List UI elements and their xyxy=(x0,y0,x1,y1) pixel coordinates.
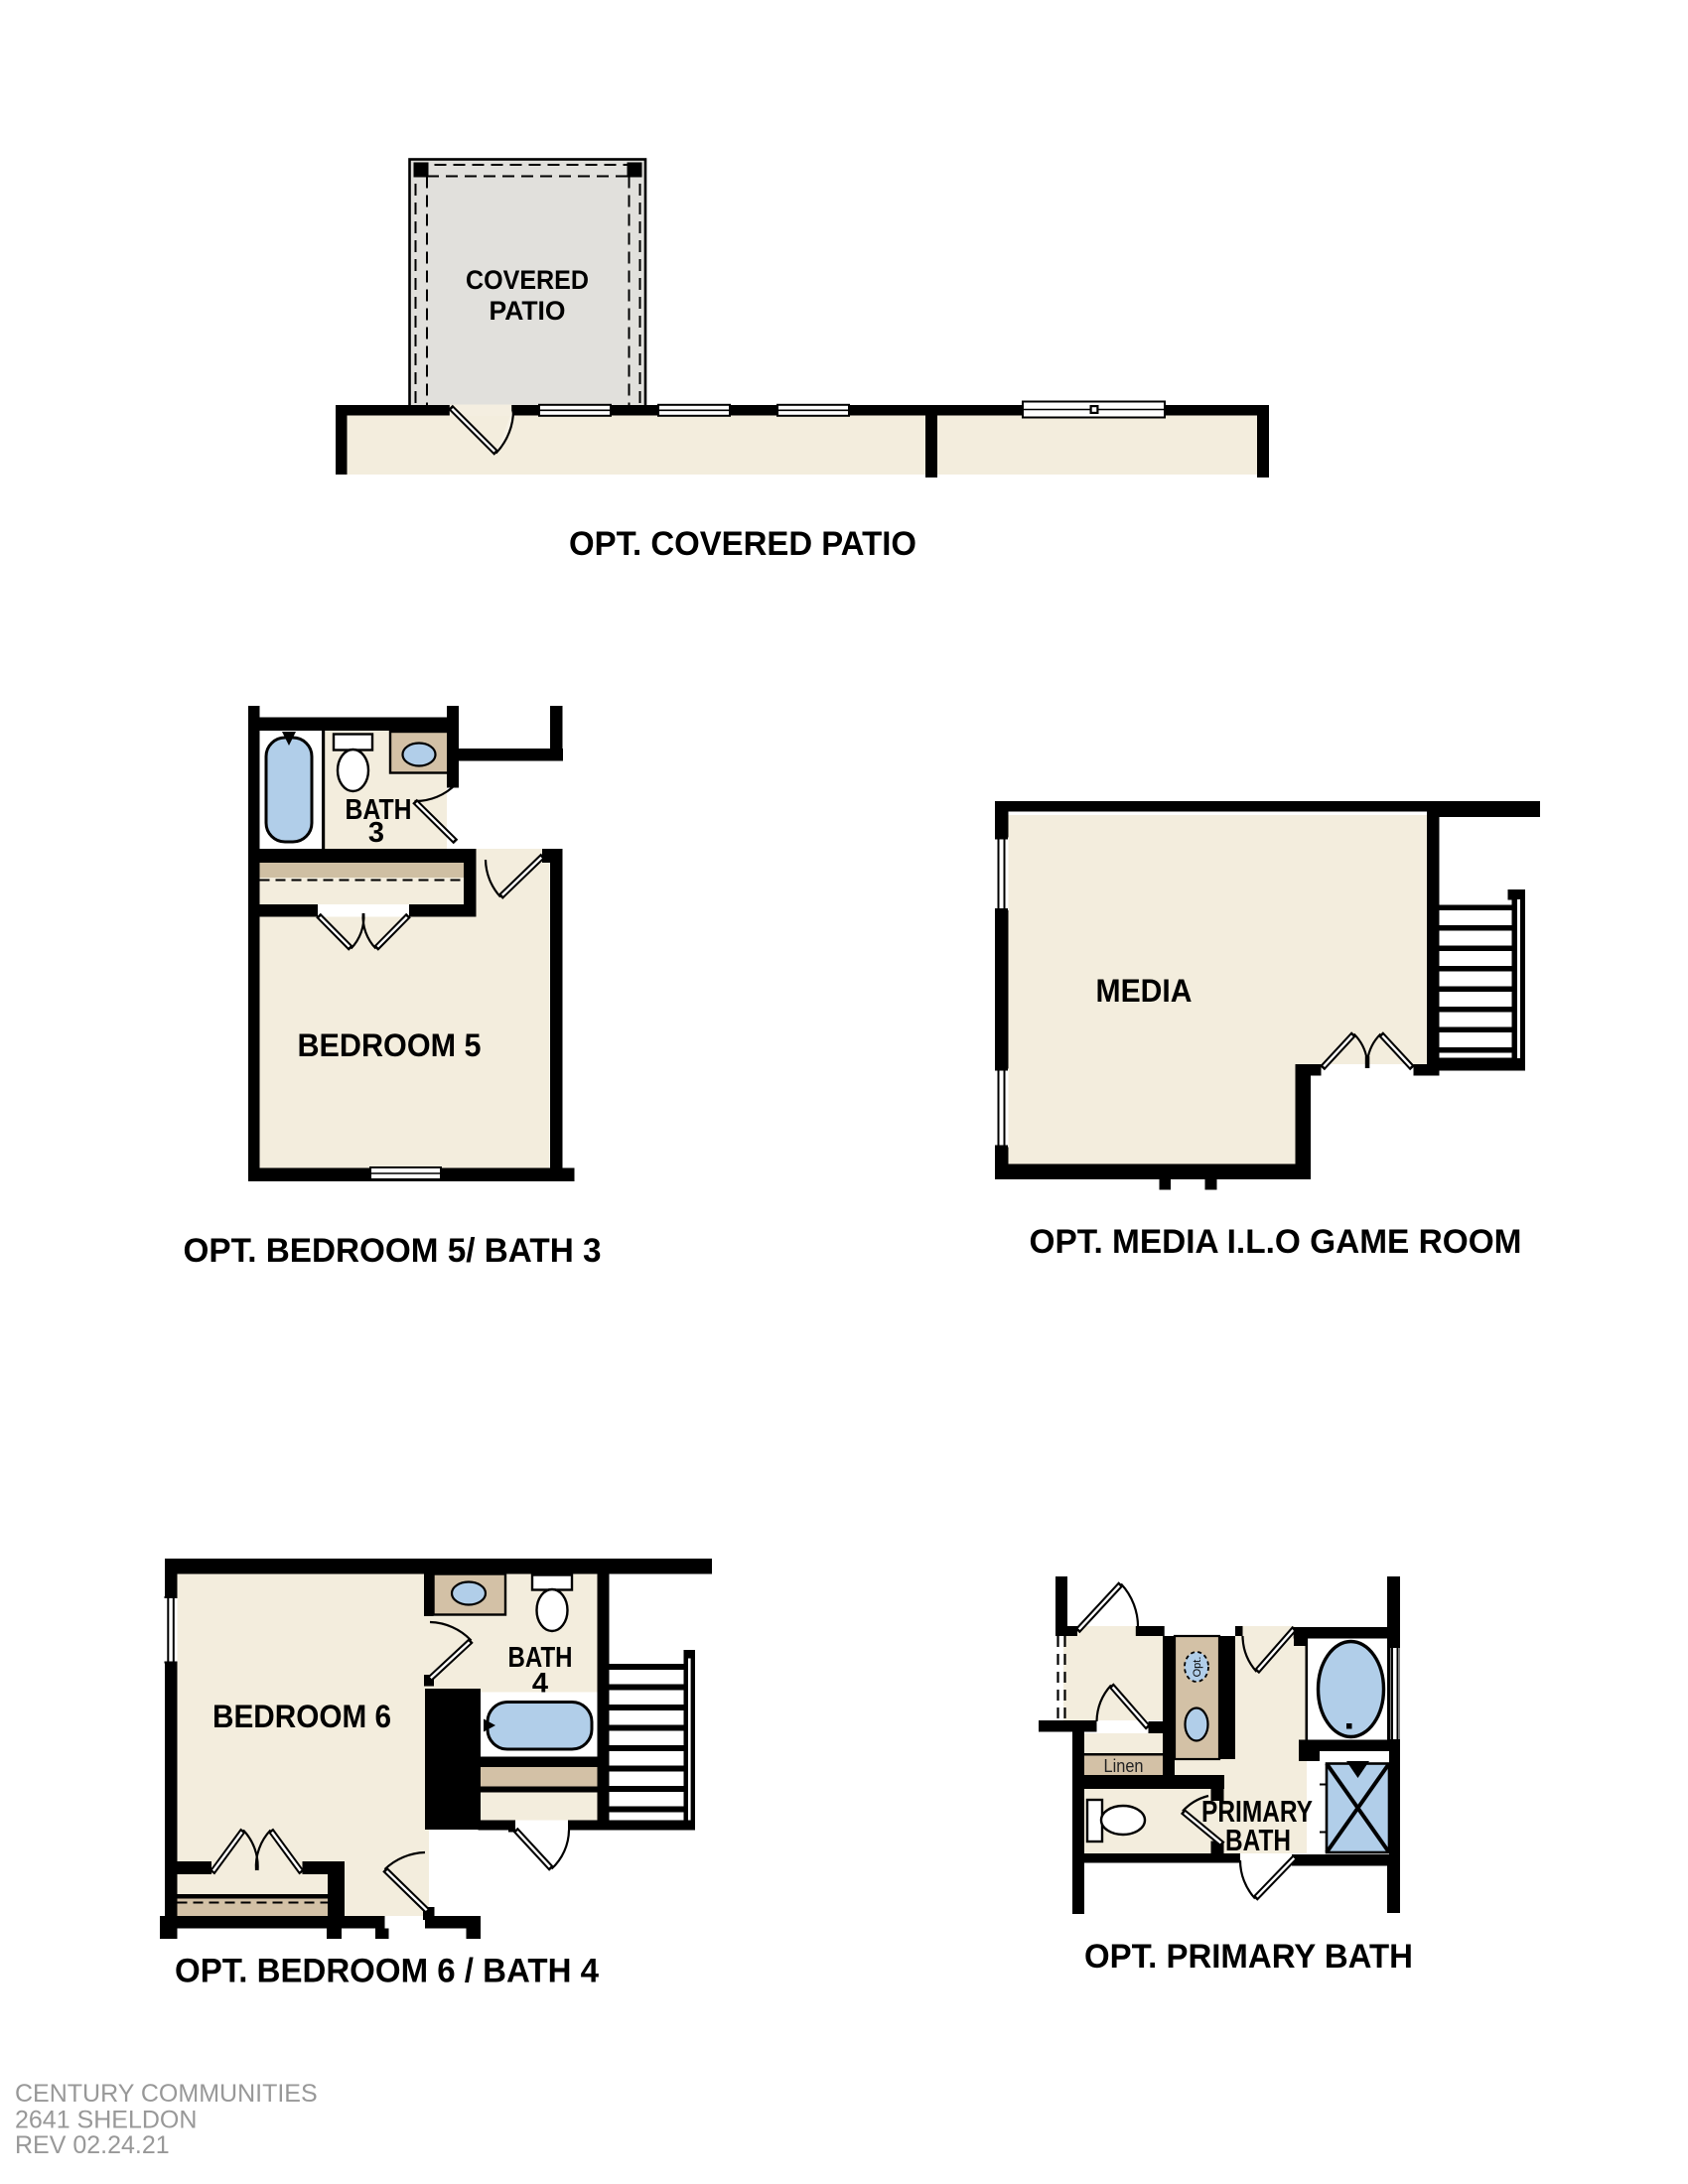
svg-text:BEDROOM 6: BEDROOM 6 xyxy=(212,1699,391,1734)
svg-text:OPT. COVERED PATIO: OPT. COVERED PATIO xyxy=(569,525,916,563)
svg-text:OPT. PRIMARY BATH: OPT. PRIMARY BATH xyxy=(1084,1938,1413,1976)
svg-text:3: 3 xyxy=(368,817,384,849)
svg-text:OPT. BEDROOM 6 / BATH 4: OPT. BEDROOM 6 / BATH 4 xyxy=(175,1953,599,1990)
svg-text:2641 SHELDON: 2641 SHELDON xyxy=(15,2107,197,2134)
svg-text:OPT. BEDROOM 5/ BATH 3: OPT. BEDROOM 5/ BATH 3 xyxy=(184,1232,602,1270)
svg-text:OPT. MEDIA I.L.O GAME ROOM: OPT. MEDIA I.L.O GAME ROOM xyxy=(1030,1223,1522,1261)
svg-text:COVERED: COVERED xyxy=(466,265,589,295)
svg-text:Opt.: Opt. xyxy=(1192,1657,1203,1678)
svg-text:MEDIA: MEDIA xyxy=(1096,973,1193,1009)
svg-text:Linen: Linen xyxy=(1104,1756,1144,1776)
svg-text:BEDROOM 5: BEDROOM 5 xyxy=(298,1027,482,1063)
svg-text:BATH: BATH xyxy=(1225,1823,1291,1857)
svg-text:CENTURY COMMUNITIES: CENTURY COMMUNITIES xyxy=(15,2080,318,2108)
svg-text:PATIO: PATIO xyxy=(490,296,566,326)
svg-text:REV 02.24.21: REV 02.24.21 xyxy=(15,2131,170,2159)
